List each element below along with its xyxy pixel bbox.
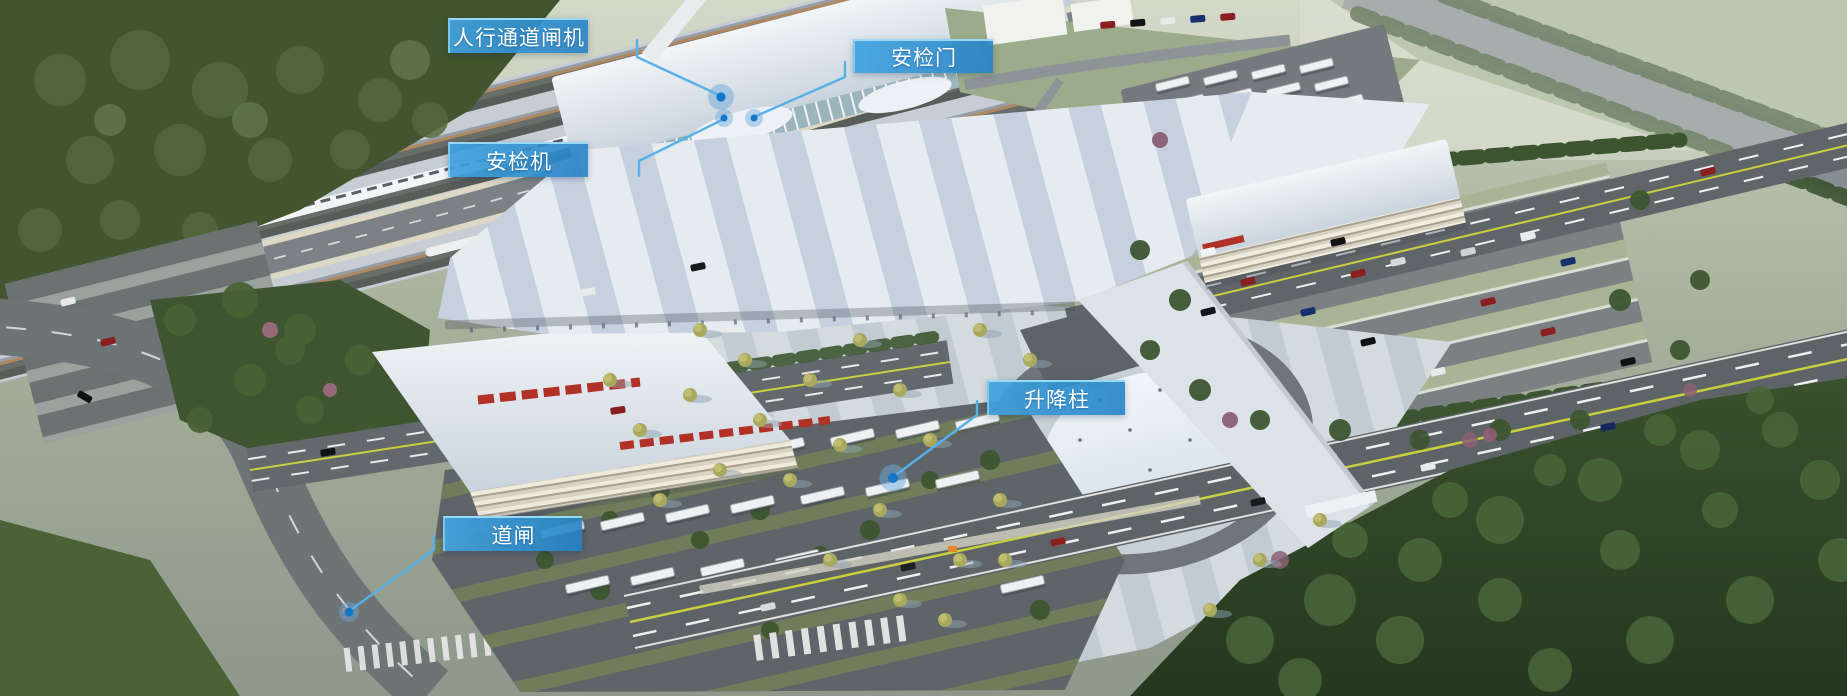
callout-label-lifting-bollard: 升降柱 (987, 380, 1125, 415)
callout-label-security-door: 安检门 (853, 39, 993, 73)
marker-dot-security-scanner (721, 115, 728, 122)
callout-label-barrier-gate: 道闸 (443, 516, 582, 551)
marker-dot-lifting-bollard (888, 473, 898, 483)
station-aerial-annotated-render: 人行通道闸机 安检门 安检机 升降柱 道闸 (0, 0, 1847, 696)
callout-label-pedestrian-channel-gate: 人行通道闸机 (448, 18, 588, 53)
aerial-scene (0, 0, 1847, 696)
marker-dot-security-door (751, 115, 758, 122)
marker-dot-barrier-gate (345, 608, 354, 617)
callout-label-security-scanner: 安检机 (448, 142, 588, 177)
marker-dot-pedestrian-channel-gate (716, 92, 725, 101)
